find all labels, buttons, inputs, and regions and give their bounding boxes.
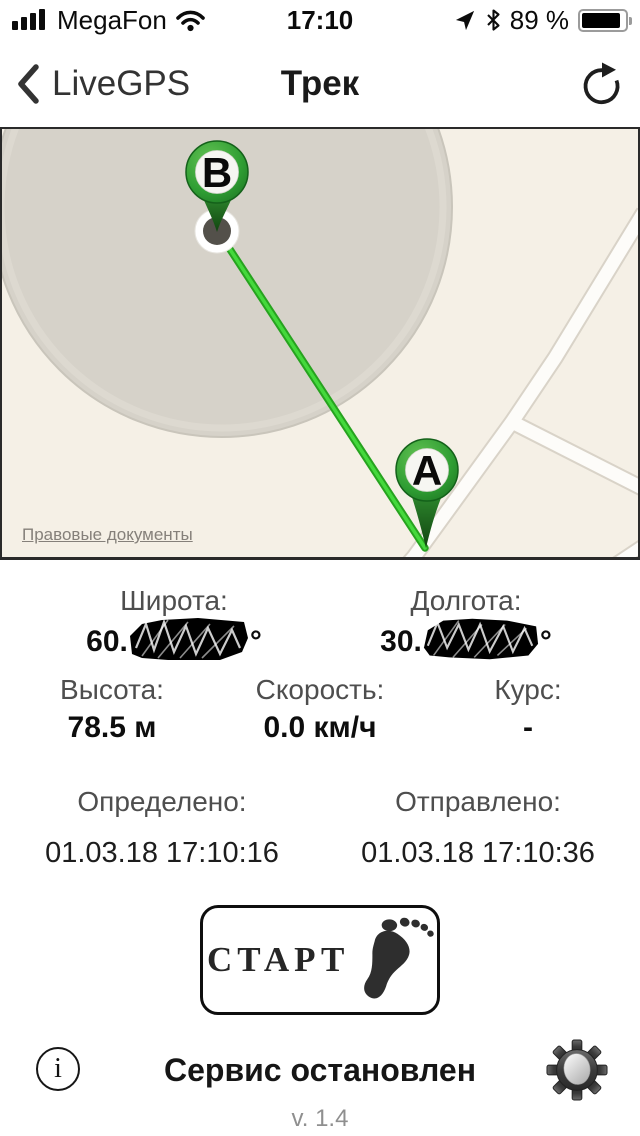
carrier-label: MegaFon <box>57 5 167 36</box>
altitude-value: 78.5 м <box>8 707 216 749</box>
footer-row: i Сервис остановлен <box>0 1037 640 1103</box>
marker-b-label: B <box>202 149 232 196</box>
nav-bar: LiveGPS Трек <box>0 40 640 127</box>
marker-a-label: A <box>412 447 442 494</box>
map-marker-a: A <box>396 439 458 548</box>
bluetooth-icon <box>486 8 501 32</box>
start-button-label: СТАРТ <box>207 940 349 980</box>
metrics-row: Высота: 78.5 м Скорость: 0.0 км/ч Курс: … <box>0 673 640 749</box>
info-icon: i <box>54 1053 62 1085</box>
sent-time-label: Отправлено: <box>320 785 636 819</box>
latitude-value: 60. ° <box>28 618 320 663</box>
info-button[interactable]: i <box>36 1047 80 1091</box>
status-bar-left: MegaFon <box>12 5 206 36</box>
speed-cell: Скорость: 0.0 км/ч <box>216 673 424 749</box>
longitude-redaction-scribble <box>422 618 540 660</box>
settings-button[interactable] <box>546 1039 608 1101</box>
course-value: - <box>424 707 632 749</box>
sent-time-cell: Отправлено: 01.03.18 17:10:36 <box>320 785 636 871</box>
footprint-icon <box>355 910 437 1010</box>
legal-documents-link[interactable]: Правовые документы <box>22 525 193 545</box>
status-bar-right: 89 % <box>454 5 628 36</box>
timestamps-row: Определено: 01.03.18 17:10:16 Отправлено… <box>0 785 640 871</box>
start-button[interactable]: СТАРТ <box>200 905 440 1015</box>
service-status-text: Сервис остановлен <box>164 1052 476 1089</box>
back-button[interactable]: LiveGPS <box>16 63 190 105</box>
refresh-button[interactable] <box>578 61 624 107</box>
coordinates-row: Широта: 60. ° Долгота: 30. ° <box>0 584 640 663</box>
battery-percent-label: 89 % <box>510 5 569 36</box>
latitude-label: Широта: <box>28 584 320 618</box>
location-services-icon <box>454 9 477 32</box>
course-cell: Курс: - <box>424 673 632 749</box>
altitude-cell: Высота: 78.5 м <box>8 673 216 749</box>
fix-time-label: Определено: <box>4 785 320 819</box>
map[interactable]: A B Правовые документы <box>0 127 640 560</box>
app-screen: MegaFon 17:10 89 % <box>0 0 640 1136</box>
latitude-prefix: 60. <box>86 625 128 658</box>
latitude-redaction-scribble <box>128 618 250 660</box>
back-button-label: LiveGPS <box>52 64 190 104</box>
sent-time-value: 01.03.18 17:10:36 <box>320 835 636 871</box>
latitude-cell: Широта: 60. ° <box>28 584 320 663</box>
fix-time-cell: Определено: 01.03.18 17:10:16 <box>4 785 320 871</box>
latitude-unit: ° <box>250 625 262 658</box>
altitude-label: Высота: <box>8 673 216 707</box>
back-chevron-icon <box>16 63 40 105</box>
longitude-label: Долгота: <box>320 584 612 618</box>
speed-value: 0.0 км/ч <box>216 707 424 749</box>
speed-label: Скорость: <box>216 673 424 707</box>
battery-fill <box>582 13 620 28</box>
fix-time-value: 01.03.18 17:10:16 <box>4 835 320 871</box>
map-canvas: A B <box>2 129 638 557</box>
longitude-prefix: 30. <box>380 625 422 658</box>
course-label: Курс: <box>424 673 632 707</box>
app-version: v. 1.4 <box>0 1105 640 1133</box>
wifi-icon <box>175 8 206 32</box>
battery-nub <box>629 17 632 25</box>
refresh-icon <box>578 61 624 107</box>
longitude-unit: ° <box>540 625 552 658</box>
status-bar: MegaFon 17:10 89 % <box>0 0 640 40</box>
gear-icon <box>546 1039 608 1101</box>
longitude-value: 30. ° <box>320 618 612 663</box>
cell-signal-icon <box>12 8 49 32</box>
longitude-cell: Долгота: 30. ° <box>320 584 612 663</box>
battery-icon <box>578 9 628 32</box>
